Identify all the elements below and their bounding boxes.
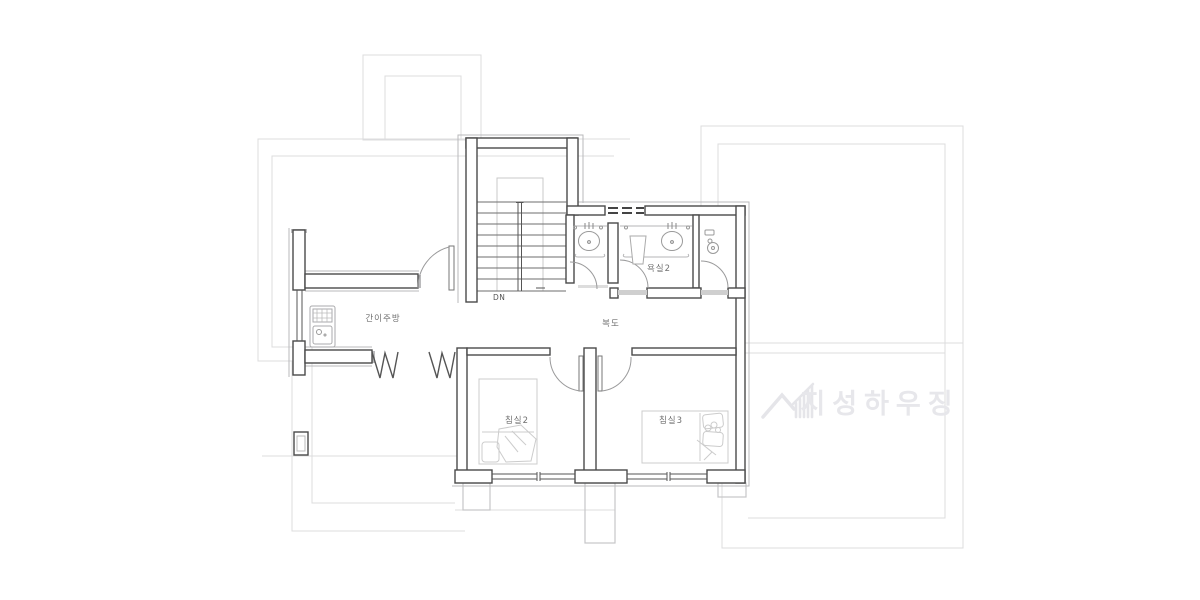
kitchen-door-arc bbox=[418, 247, 449, 288]
bedroom3-door-leaf bbox=[598, 356, 602, 391]
bathroom-sink-icon-left bbox=[574, 222, 608, 257]
alcove-divider-wall bbox=[608, 223, 618, 283]
bedroom2-door-leaf bbox=[579, 356, 583, 391]
east-wall bbox=[736, 206, 745, 483]
kitchen-north-wall bbox=[305, 274, 418, 288]
bedroom-divider-wall bbox=[584, 348, 596, 472]
pillow bbox=[482, 442, 499, 462]
chimney-outline-outer bbox=[363, 55, 481, 140]
stair-top-wall bbox=[466, 138, 577, 148]
south-wall-pier-center bbox=[575, 470, 627, 483]
window-bedroom2-south bbox=[492, 472, 575, 481]
stair-right-wall bbox=[567, 138, 578, 215]
zigzag-w-2 bbox=[429, 352, 455, 378]
kitchen-west-wall-lower bbox=[293, 341, 305, 375]
toilet-icon bbox=[705, 230, 719, 254]
room-label-kitchenette: 간이주방 bbox=[365, 313, 400, 324]
south-wall-pier-right bbox=[707, 470, 745, 483]
logo-mountain bbox=[763, 395, 794, 417]
kitchen-sink-icon bbox=[310, 306, 335, 347]
bedroom2-door-arc bbox=[550, 357, 581, 391]
floor-plan-page: 지성하우징 DN bbox=[0, 0, 1200, 600]
bath-north-wall-left bbox=[567, 206, 605, 215]
bath-door-sill bbox=[618, 290, 647, 295]
room-label-bathroom2: 욕실2 bbox=[647, 263, 671, 274]
alcove-door-sill bbox=[578, 285, 608, 288]
stair-landing bbox=[497, 178, 543, 202]
bedroom3-door-arc bbox=[602, 357, 631, 391]
window-kitchen-west bbox=[297, 290, 302, 341]
watermark-text: 지성하우징 bbox=[800, 389, 959, 420]
right-roof-outline-inner bbox=[718, 144, 945, 518]
bath-south-wall-a bbox=[610, 288, 618, 298]
left-roof-outline-inner bbox=[272, 156, 614, 503]
chimney-outline-inner bbox=[385, 76, 461, 140]
bedroom2-north-wall bbox=[467, 348, 550, 355]
stairwell: DN bbox=[477, 178, 566, 302]
void-railing-zigzags bbox=[372, 352, 455, 378]
foundation-buttresses bbox=[463, 483, 746, 543]
stair-dn-label: DN bbox=[493, 293, 505, 302]
room-label-hallway: 복도 bbox=[602, 319, 620, 329]
toilet-divider-wall bbox=[693, 215, 699, 288]
south-wall-pier-left bbox=[455, 470, 492, 483]
bath-south-wall-c bbox=[728, 288, 745, 298]
kitchen-door-leaf bbox=[449, 246, 454, 290]
bedroom3-north-wall bbox=[632, 348, 736, 355]
toilet-door-sill bbox=[701, 290, 728, 295]
buttress-left bbox=[463, 483, 490, 510]
quilt bbox=[497, 425, 536, 462]
bath-south-wall-b bbox=[647, 288, 701, 298]
wall-outer-offsets bbox=[289, 135, 749, 486]
stair-rail bbox=[516, 203, 545, 292]
bedroom2-west-wall bbox=[457, 348, 467, 472]
bed-icon-bedroom3 bbox=[642, 411, 728, 463]
bath-north-wall-right bbox=[645, 206, 745, 215]
void-rail-wall bbox=[305, 350, 372, 363]
buttress-center bbox=[585, 483, 615, 543]
walls bbox=[293, 138, 745, 483]
watermark: 지성하우징 bbox=[763, 384, 960, 420]
stair-left-wall bbox=[466, 138, 477, 302]
floor-plan-svg: 지성하우징 DN bbox=[0, 0, 1200, 600]
zigzag-w-1 bbox=[372, 352, 398, 378]
windows bbox=[297, 208, 707, 481]
kitchen-west-wall-upper bbox=[293, 230, 305, 290]
room-label-bedroom3: 침실3 bbox=[659, 415, 683, 426]
window-bath-north bbox=[608, 208, 644, 213]
window-bedroom3-south bbox=[627, 472, 707, 481]
west-ledge-stub bbox=[294, 432, 308, 455]
bath-vanity-cabinet bbox=[630, 236, 646, 264]
alcove-left-wall bbox=[566, 215, 574, 283]
toilet-door-arc bbox=[701, 261, 728, 288]
pillow bbox=[703, 431, 724, 446]
room-label-bedroom2: 침실2 bbox=[505, 415, 529, 426]
